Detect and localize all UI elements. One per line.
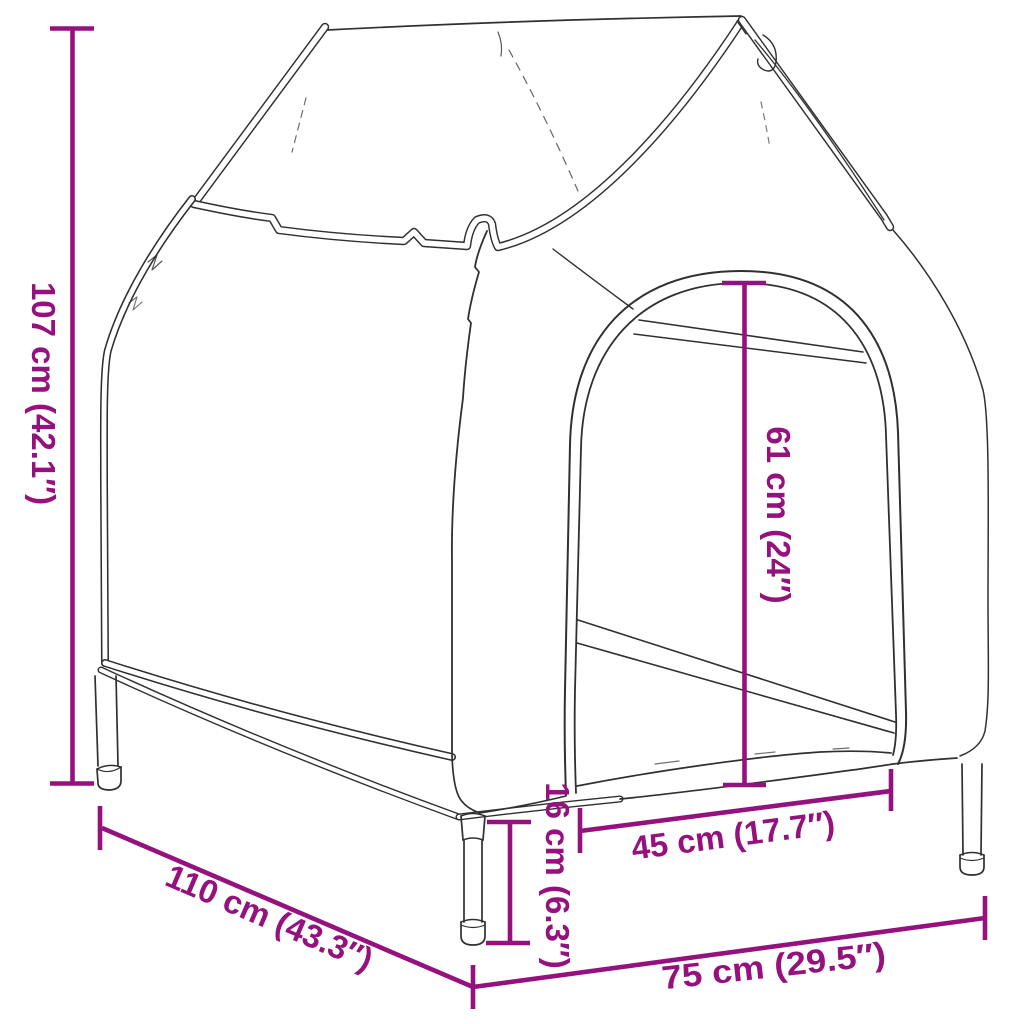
svg-text:107 cm (42.1″): 107 cm (42.1″) xyxy=(25,282,62,505)
svg-text:16 cm (6.3″): 16 cm (6.3″) xyxy=(539,782,576,968)
svg-text:61 cm (24″): 61 cm (24″) xyxy=(760,426,797,603)
